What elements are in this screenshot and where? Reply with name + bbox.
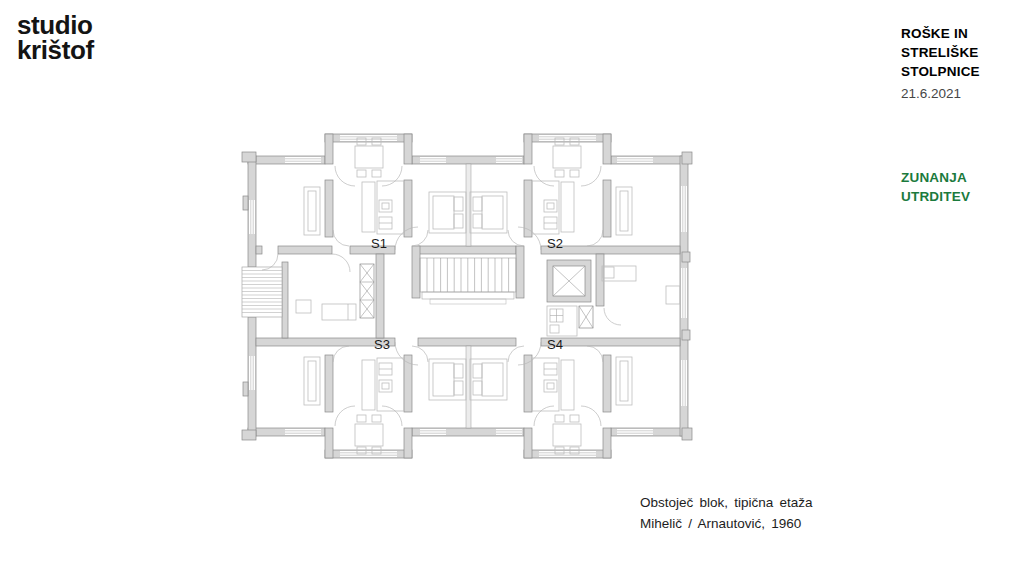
elevator-shaft	[547, 260, 591, 302]
studio-logo: studio krištof	[17, 13, 94, 63]
section-label: ZUNANJA UTRDITEV	[901, 168, 970, 206]
project-header: ROŠKE IN STRELIŠKE STOLPNICE 21.6.2021	[901, 24, 980, 103]
unit-label-s4: S4	[547, 337, 563, 352]
staircase	[420, 258, 516, 304]
unit-label-s1: S1	[371, 236, 387, 251]
balcony	[242, 267, 282, 317]
common-room-furniture	[296, 300, 356, 320]
section-label-line: UTRDITEV	[901, 187, 970, 206]
caption-line-1: Obstoječ blok, tipična etaža	[640, 492, 813, 513]
floor-plan: S1 S2 S3 S4	[238, 118, 694, 466]
project-date: 21.6.2021	[901, 84, 980, 103]
unit-label-s2: S2	[547, 236, 563, 251]
drying-room-furniture	[602, 266, 680, 325]
logo-line-2: krištof	[17, 38, 94, 63]
caption-line-2: Mihelič / Arnautović, 1960	[640, 513, 813, 534]
core-bathroom	[547, 306, 577, 336]
project-title-line: STRELIŠKE	[901, 43, 980, 62]
plan-caption: Obstoječ blok, tipična etaža Mihelič / A…	[640, 492, 813, 534]
section-label-line: ZUNANJA	[901, 168, 970, 187]
unit-label-s3: S3	[374, 337, 390, 352]
installation-shaft	[360, 264, 374, 318]
slide: studio krištof ROŠKE IN STRELIŠKE STOLPN…	[0, 0, 1024, 576]
project-title-line: ROŠKE IN	[901, 24, 980, 43]
service-shaft	[579, 306, 593, 328]
project-title-line: STOLPNICE	[901, 62, 980, 81]
